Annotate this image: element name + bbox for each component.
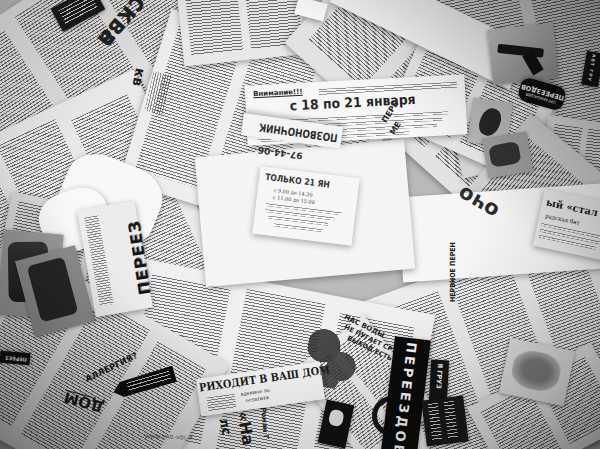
ya-gruz-text: Я ГРУЗ xyxy=(435,363,444,389)
subhead-fragment: остатита xyxy=(245,395,269,403)
roman-byline: Роман Г xyxy=(259,407,269,440)
dark-figure-shape xyxy=(488,141,521,168)
inverted-text-texture xyxy=(444,401,459,440)
tolko-flyer: ТОЛЬКО 21 ЯН с 9.00 до 14.30 с 11.00 до … xyxy=(252,166,360,246)
gun-barrel-shape xyxy=(497,44,544,58)
ya-gruz-label: Я ГРУЗ xyxy=(429,360,449,403)
inverted-text-texture xyxy=(428,403,443,442)
torn-black-scrap: ПЕРЕЕЗ xyxy=(0,351,30,366)
pereezdov-vertical-text: ПЕРЕЕЗДОВ xyxy=(390,341,419,449)
newsprint-texture xyxy=(273,223,323,232)
na-title-fragment: «На xyxy=(234,410,256,447)
pereez-tag-text: ПЕРЕЕЗ xyxy=(5,355,27,362)
newsprint-texture xyxy=(207,394,237,412)
nervnoe-fragment: НЕРВНОЕ ПЕРЕН xyxy=(450,242,457,302)
picture-blotch xyxy=(328,409,345,428)
black-schedule-panel xyxy=(421,396,468,447)
dark-figure-shape xyxy=(27,257,79,323)
dark-figure-shape xyxy=(475,105,504,139)
sketch-blob xyxy=(509,347,564,394)
kv-fragment: кв xyxy=(130,67,148,88)
newsprint-texture xyxy=(185,0,243,56)
gun-photo xyxy=(487,23,558,86)
cargo-label-text: АВТ ГРУ xyxy=(587,54,597,83)
ls-fragment: лс xyxy=(217,417,233,437)
newspaper-collage-photo: осква в кв Внимание!!! с 18 по 21 января… xyxy=(0,0,600,449)
photo-fragment xyxy=(482,131,533,178)
